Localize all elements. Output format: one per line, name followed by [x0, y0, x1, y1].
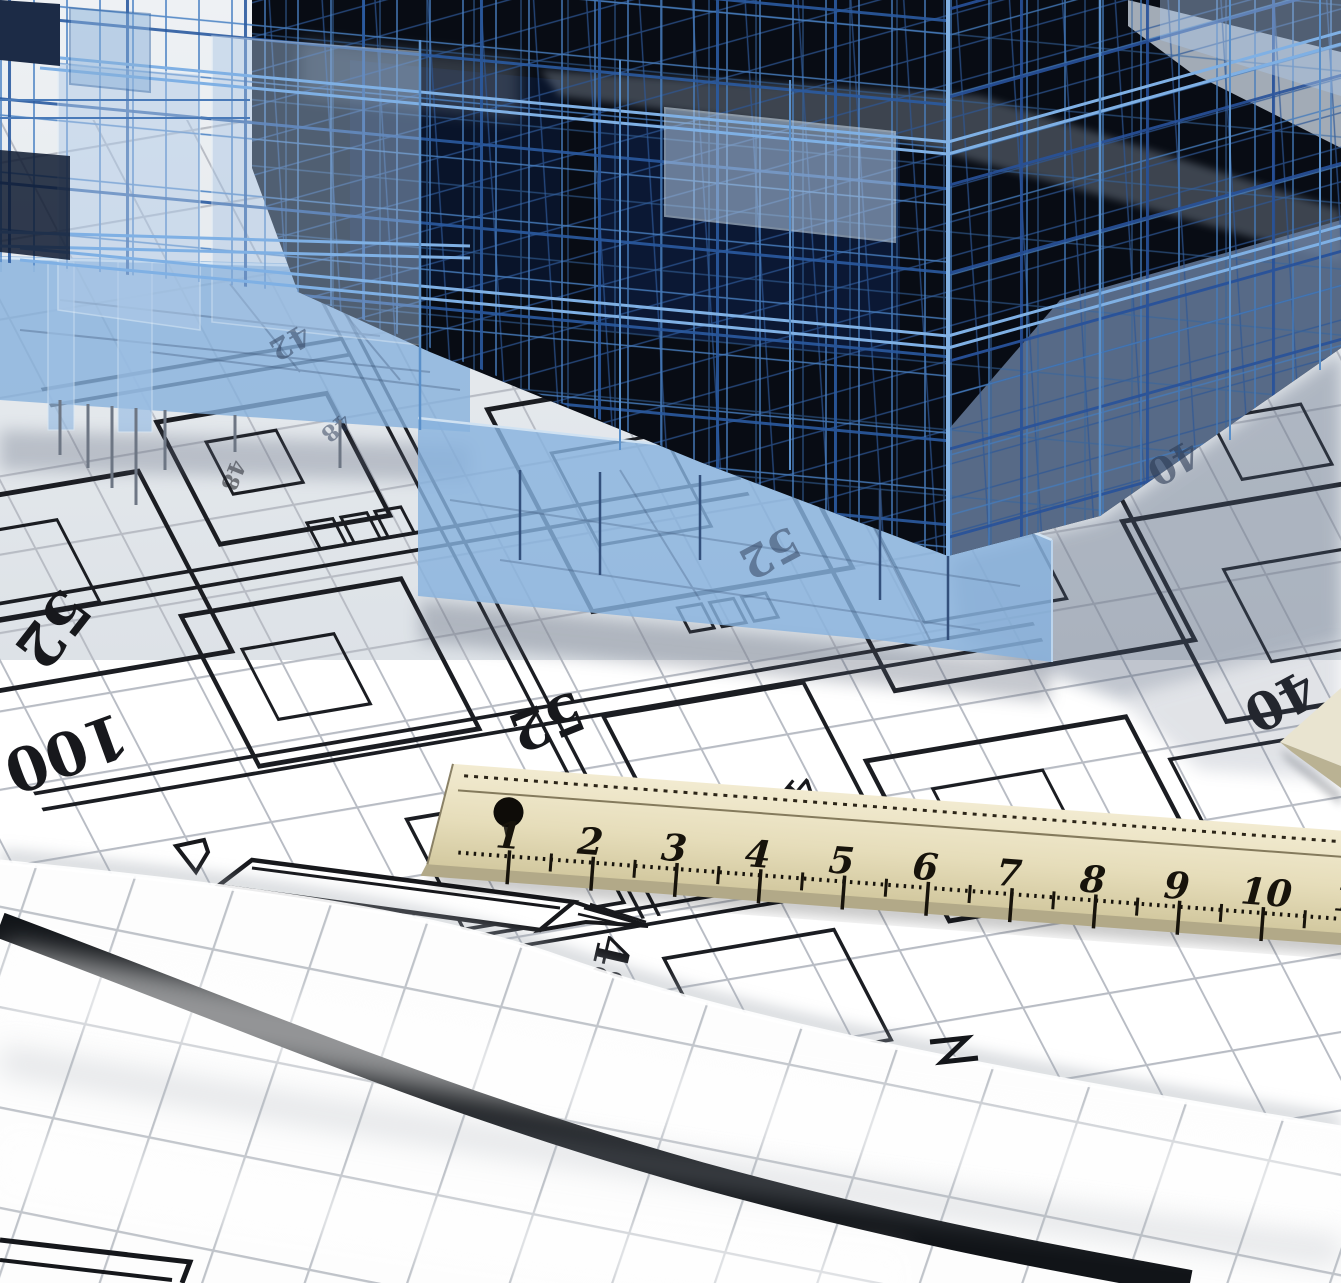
architectural-render-scene: 52 100 52 48 40 5 48 48 — [0, 0, 1341, 1283]
ruler-number: 5 — [827, 837, 856, 883]
ruler-number: 2 — [575, 818, 605, 864]
ruler-number: 4 — [743, 831, 772, 877]
ruler-number: 8 — [1078, 856, 1108, 902]
ruler-number: 6 — [911, 844, 940, 890]
ruler-number: 9 — [1162, 863, 1191, 909]
scene-canvas: 52 100 52 48 40 5 48 48 — [0, 0, 1341, 1283]
ruler-number: 7 — [995, 850, 1024, 896]
ruler-number: 10 — [1239, 868, 1294, 916]
ruler-number: 3 — [660, 825, 689, 871]
